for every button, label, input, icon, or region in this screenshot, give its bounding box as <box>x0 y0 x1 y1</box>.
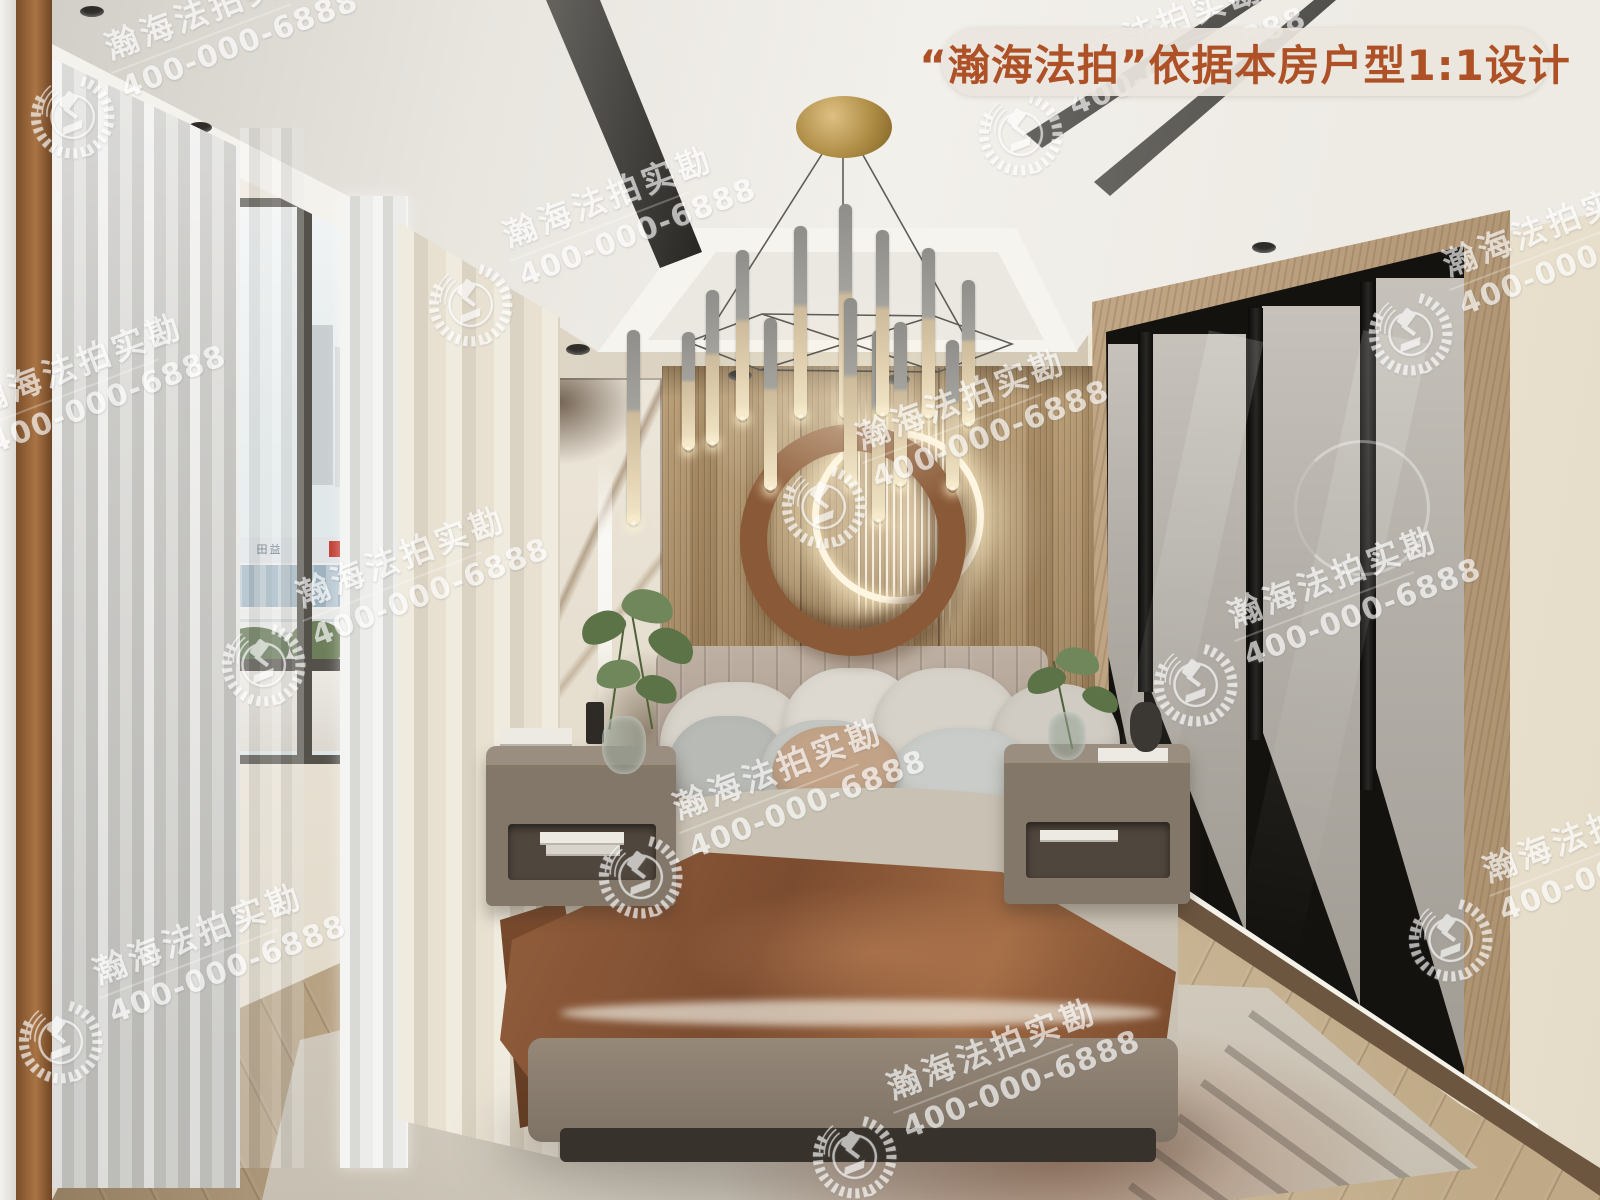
chandelier-tube <box>946 340 959 490</box>
chandelier-tube <box>627 330 640 525</box>
books <box>1098 748 1168 761</box>
books <box>540 832 624 843</box>
downlight <box>566 344 590 355</box>
glass-vase <box>1048 712 1086 760</box>
glass-vase <box>602 716 646 774</box>
sheer-curtain <box>52 58 240 1188</box>
sheer-curtain-fold <box>240 128 304 1168</box>
chandelier-tube <box>922 248 935 418</box>
chandelier-tube <box>844 298 857 486</box>
chandelier-canopy <box>796 96 892 158</box>
leather-wall-trim <box>16 0 52 1200</box>
downlight <box>80 6 104 17</box>
downlight <box>1252 242 1276 253</box>
chandelier-tube <box>736 250 749 420</box>
design-claim-badge: “瀚海法拍”依据本房户型1:1设计 <box>942 28 1548 96</box>
books <box>500 728 572 744</box>
chandelier-frame <box>600 90 1060 570</box>
bed-plinth <box>560 1128 1156 1162</box>
books <box>546 845 620 854</box>
chandelier-tube <box>794 226 807 418</box>
bedroom-render: 田益 <box>0 0 1600 1200</box>
books <box>1040 830 1118 840</box>
badge-text: “瀚海法拍”依据本房户型1:1设计 <box>919 32 1570 93</box>
duvet-fold <box>560 1000 1160 1026</box>
dark-vase <box>1130 702 1162 752</box>
chandelier-tube <box>706 290 719 445</box>
chandelier-tube <box>764 318 777 490</box>
chandelier-tube <box>894 322 907 486</box>
frame-edge <box>0 0 16 1200</box>
chandelier-tube <box>682 332 695 450</box>
chandelier-tube <box>876 230 889 416</box>
chandelier-tube <box>962 280 975 426</box>
bed-base <box>528 1038 1178 1142</box>
sheer-curtain-panel <box>340 196 408 1168</box>
